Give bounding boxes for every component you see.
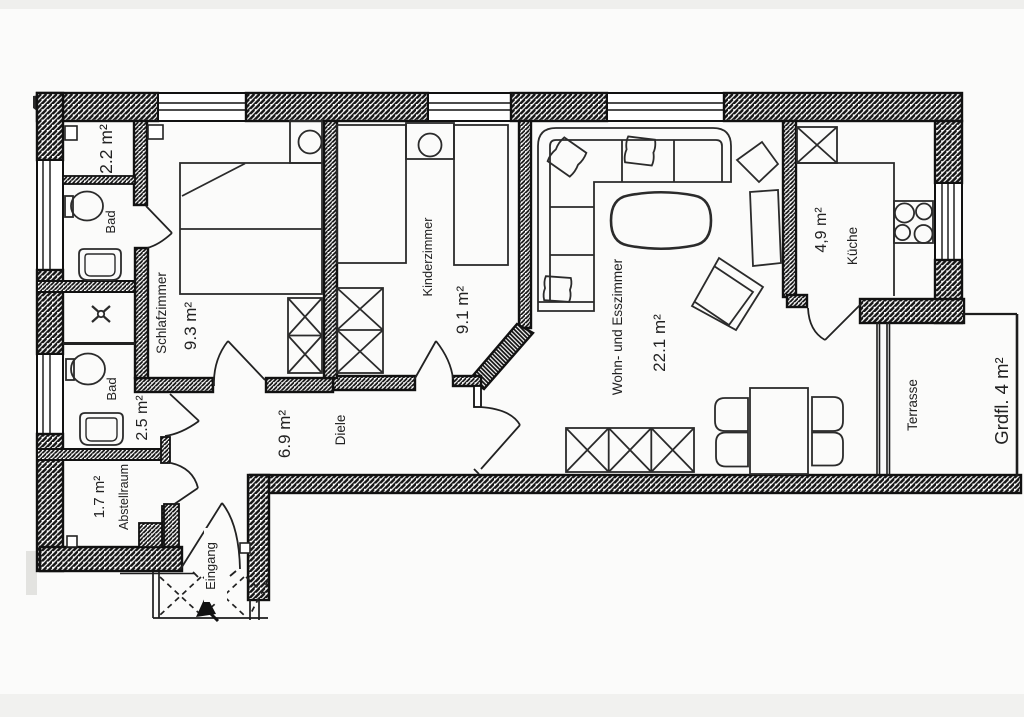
svg-text:2.5 m²: 2.5 m² <box>134 395 151 441</box>
svg-text:Diele: Diele <box>333 415 348 446</box>
svg-text:Bad: Bad <box>104 377 119 400</box>
svg-text:Küche: Küche <box>845 227 860 265</box>
svg-text:Kinderzimmer: Kinderzimmer <box>420 217 435 297</box>
svg-text:Bad: Bad <box>103 210 118 233</box>
svg-text:Terrasse: Terrasse <box>905 379 920 431</box>
svg-text:1.7 m²: 1.7 m² <box>91 476 108 519</box>
svg-text:6.9 m²: 6.9 m² <box>275 410 294 459</box>
svg-text:Abstellraum: Abstellraum <box>117 464 131 530</box>
svg-text:Grdfl. 4 m²: Grdfl. 4 m² <box>991 357 1012 444</box>
svg-text:2.2 m²: 2.2 m² <box>96 124 116 174</box>
svg-text:4,9 m²: 4,9 m² <box>813 207 830 253</box>
svg-text:9.3 m²: 9.3 m² <box>181 302 200 351</box>
svg-text:Schlafzimmer: Schlafzimmer <box>154 272 169 354</box>
svg-text:22.1 m²: 22.1 m² <box>650 314 669 372</box>
svg-text:9.1 m²: 9.1 m² <box>453 286 472 335</box>
svg-text:Eingang: Eingang <box>203 542 218 590</box>
svg-text:Wohn- und Esszimmer: Wohn- und Esszimmer <box>610 258 625 395</box>
